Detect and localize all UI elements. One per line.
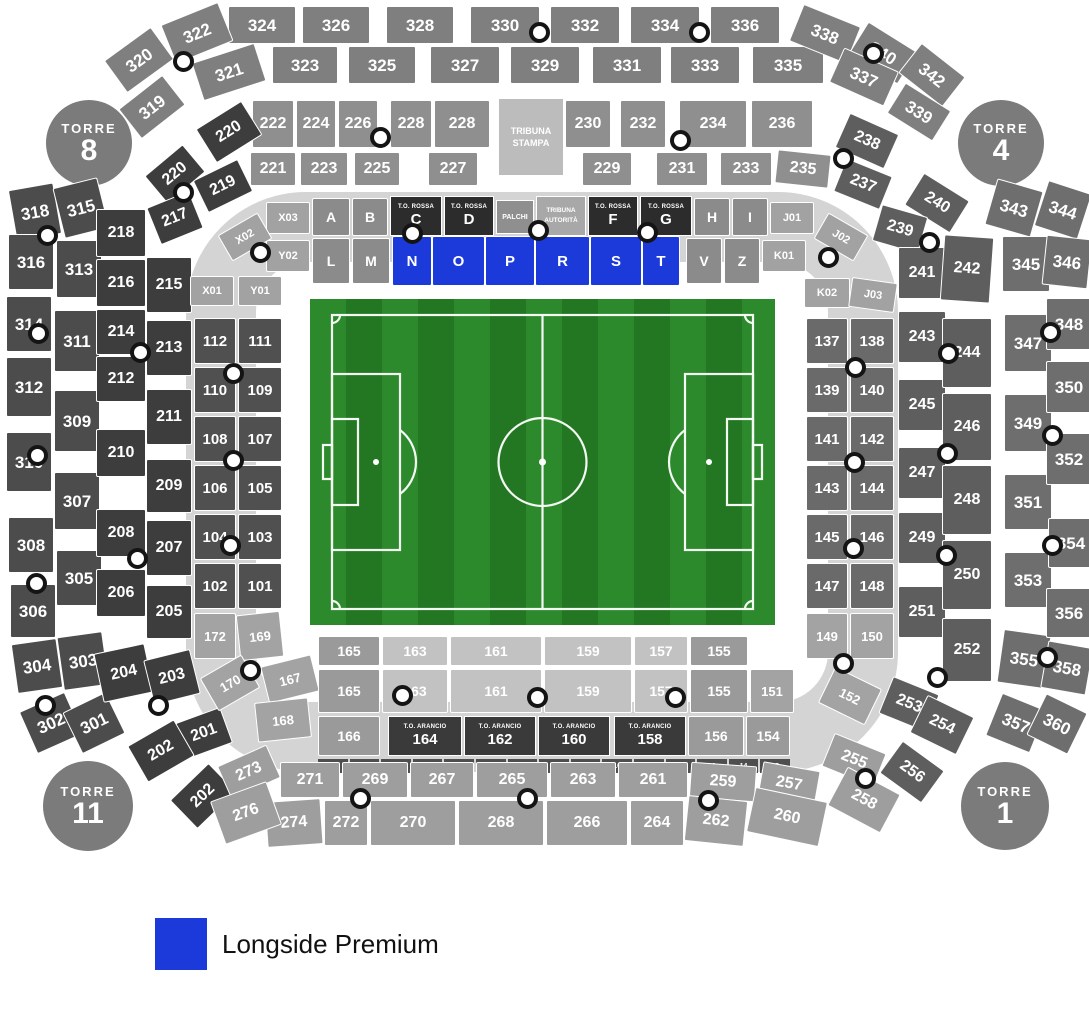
- section-D: T.O. ROSSAD: [444, 196, 494, 236]
- gate-marker-icon: [1040, 322, 1061, 343]
- gate-marker-icon: [528, 220, 549, 241]
- section-166: 166: [318, 716, 380, 756]
- gate-marker-icon: [637, 222, 658, 243]
- stadium-seating-map: TORRE 8 TORRE 4 TORRE 11 TORRE 1 TRIBUNA…: [0, 0, 1089, 1032]
- section-267: 267: [410, 762, 474, 798]
- gate-marker-icon: [689, 22, 710, 43]
- section-B: B: [352, 198, 388, 236]
- section-106: 106: [194, 465, 236, 511]
- section-137: 137: [806, 318, 848, 364]
- gate-marker-icon: [370, 127, 391, 148]
- section-328: 328: [386, 6, 454, 44]
- gate-marker-icon: [527, 687, 548, 708]
- section-263: 263: [550, 762, 616, 798]
- gate-marker-icon: [240, 660, 261, 681]
- gate-marker-icon: [37, 225, 58, 246]
- section-329: 329: [510, 46, 580, 84]
- section-Y02: Y02: [266, 240, 310, 272]
- section-336: 336: [710, 6, 780, 44]
- section-252: 252: [942, 618, 992, 682]
- section-M: M: [352, 238, 390, 284]
- section-206: 206: [96, 569, 146, 617]
- gate-marker-icon: [223, 363, 244, 384]
- section-105: 105: [238, 465, 282, 511]
- section-101: 101: [238, 563, 282, 609]
- section-143: 143: [806, 465, 848, 511]
- gate-marker-icon: [919, 232, 940, 253]
- section-245: 245: [898, 379, 946, 431]
- section-161: 161: [450, 636, 542, 666]
- section-207: 207: [146, 520, 192, 576]
- gate-marker-icon: [28, 323, 49, 344]
- section-102: 102: [194, 563, 236, 609]
- gate-marker-icon: [26, 573, 47, 594]
- gate-marker-icon: [936, 545, 957, 566]
- section-S[interactable]: S: [590, 236, 642, 286]
- section-109: 109: [238, 367, 282, 413]
- section-326: 326: [302, 6, 370, 44]
- section-221: 221: [250, 152, 296, 186]
- legend-label: Longside Premium: [222, 929, 439, 960]
- section-211: 211: [146, 389, 192, 445]
- section-333: 333: [670, 46, 740, 84]
- section-T[interactable]: T: [642, 236, 680, 286]
- section-X01: X01: [190, 276, 234, 306]
- section-I: I: [732, 198, 768, 236]
- gate-marker-icon: [937, 443, 958, 464]
- gate-marker-icon: [27, 445, 48, 466]
- gate-marker-icon: [698, 790, 719, 811]
- section-215: 215: [146, 257, 192, 313]
- section-157: 157: [634, 636, 688, 666]
- tower-1: TORRE 1: [961, 762, 1049, 850]
- section-141: 141: [806, 416, 848, 462]
- section-X03: X03: [266, 202, 310, 234]
- section-360: 360: [1026, 693, 1088, 755]
- section-323: 323: [272, 46, 338, 84]
- section-332: 332: [550, 6, 620, 44]
- section-335: 335: [752, 46, 824, 84]
- section-327: 327: [430, 46, 500, 84]
- gate-marker-icon: [927, 667, 948, 688]
- section-307: 307: [54, 472, 100, 530]
- gate-marker-icon: [1037, 647, 1058, 668]
- section-233: 233: [720, 152, 772, 186]
- section-229: 229: [582, 152, 632, 186]
- section-213: 213: [146, 320, 192, 376]
- section-311: 311: [54, 310, 100, 372]
- section-227: 227: [428, 152, 478, 186]
- section-154: 154: [746, 716, 790, 756]
- section-264: 264: [630, 800, 684, 846]
- gate-marker-icon: [220, 535, 241, 556]
- section-241: 241: [898, 247, 946, 299]
- section-F: T.O. ROSSAF: [588, 196, 638, 236]
- section-356: 356: [1046, 588, 1089, 638]
- pitch: [310, 299, 775, 625]
- section-265: 265: [476, 762, 548, 798]
- gate-marker-icon: [392, 685, 413, 706]
- section-P[interactable]: P: [485, 236, 535, 286]
- section-266: 266: [546, 800, 628, 846]
- section-248: 248: [942, 465, 992, 535]
- section-145: 145: [806, 514, 848, 560]
- section-216: 216: [96, 259, 146, 307]
- section-155: 155: [690, 636, 748, 666]
- section-103: 103: [238, 514, 282, 560]
- section-168: 168: [254, 697, 312, 742]
- section-165: 165: [318, 669, 380, 713]
- gate-marker-icon: [250, 242, 271, 263]
- section-228: 228: [390, 100, 432, 148]
- gate-marker-icon: [670, 130, 691, 151]
- section-346: 346: [1042, 235, 1089, 290]
- gate-marker-icon: [938, 343, 959, 364]
- section-159: 159: [544, 669, 632, 713]
- section-330: 330: [470, 6, 540, 44]
- section-232: 232: [620, 100, 666, 148]
- section-139: 139: [806, 367, 848, 413]
- gate-marker-icon: [863, 43, 884, 64]
- section-151: 151: [750, 669, 794, 713]
- gate-marker-icon: [833, 148, 854, 169]
- section-334: 334: [630, 6, 700, 44]
- section-tribuna-stampa: TRIBUNA STAMPA: [498, 98, 564, 176]
- gate-marker-icon: [402, 223, 423, 244]
- section-304: 304: [11, 638, 64, 694]
- section-155: 155: [690, 669, 748, 713]
- section-209: 209: [146, 459, 192, 513]
- gate-marker-icon: [1042, 425, 1063, 446]
- section-225: 225: [354, 152, 400, 186]
- section-A: A: [312, 198, 350, 236]
- gate-marker-icon: [1042, 535, 1063, 556]
- section-242: 242: [940, 234, 994, 303]
- section-O[interactable]: O: [432, 236, 485, 286]
- tower-4: TORRE 4: [958, 100, 1044, 186]
- section-308: 308: [8, 517, 54, 573]
- section-Z: Z: [724, 238, 760, 284]
- section-R[interactable]: R: [535, 236, 590, 286]
- section-344: 344: [1034, 180, 1089, 240]
- section-325: 325: [348, 46, 416, 84]
- section-150: 150: [850, 613, 894, 659]
- section-312: 312: [6, 357, 52, 417]
- section-228: 228: [434, 100, 490, 148]
- section-353: 353: [1004, 552, 1052, 608]
- section-147: 147: [806, 563, 848, 609]
- gate-marker-icon: [529, 22, 550, 43]
- section-J03: J03: [848, 277, 898, 313]
- section-172: 172: [194, 613, 236, 659]
- section-165: 165: [318, 636, 380, 666]
- section-343: 343: [984, 178, 1043, 237]
- section-324: 324: [228, 6, 296, 44]
- section-309: 309: [54, 390, 100, 452]
- gate-marker-icon: [223, 450, 244, 471]
- section-205: 205: [146, 585, 192, 639]
- section-112: 112: [194, 318, 236, 364]
- gate-marker-icon: [350, 788, 371, 809]
- section-251: 251: [898, 586, 946, 638]
- gate-marker-icon: [845, 357, 866, 378]
- section-223: 223: [300, 152, 348, 186]
- section-156: 156: [688, 716, 744, 756]
- section-163: 163: [382, 636, 448, 666]
- section-271: 271: [280, 762, 340, 798]
- section-222: 222: [252, 100, 294, 148]
- gate-marker-icon: [665, 687, 686, 708]
- section-162: T.O. ARANCIO162: [464, 716, 536, 756]
- section-J01: J01: [770, 202, 814, 234]
- section-111: 111: [238, 318, 282, 364]
- section-231: 231: [656, 152, 708, 186]
- section-107: 107: [238, 416, 282, 462]
- gate-marker-icon: [173, 51, 194, 72]
- section-301: 301: [62, 692, 125, 754]
- section-V: V: [686, 238, 722, 284]
- section-H: H: [694, 198, 730, 236]
- section-210: 210: [96, 429, 146, 477]
- section-164: T.O. ARANCIO164: [388, 716, 462, 756]
- section-350: 350: [1046, 361, 1089, 413]
- legend-swatch: [155, 918, 207, 970]
- gate-marker-icon: [173, 182, 194, 203]
- gate-marker-icon: [844, 452, 865, 473]
- section-158: T.O. ARANCIO158: [614, 716, 686, 756]
- gate-marker-icon: [148, 695, 169, 716]
- section-314: 314: [6, 296, 52, 352]
- section-230: 230: [565, 100, 611, 148]
- section-169: 169: [236, 611, 285, 661]
- gate-marker-icon: [130, 342, 151, 363]
- section-148: 148: [850, 563, 894, 609]
- section-236: 236: [751, 100, 813, 148]
- section-270: 270: [370, 800, 456, 846]
- section-K02: K02: [804, 278, 850, 308]
- section-159: 159: [544, 636, 632, 666]
- section-331: 331: [592, 46, 662, 84]
- gate-marker-icon: [833, 653, 854, 674]
- tower-8: TORRE 8: [46, 100, 132, 186]
- gate-marker-icon: [843, 538, 864, 559]
- section-K01: K01: [762, 240, 806, 272]
- section-351: 351: [1004, 474, 1052, 530]
- section-L: L: [312, 238, 350, 284]
- section-218: 218: [96, 209, 146, 257]
- section-261: 261: [618, 762, 688, 798]
- gate-marker-icon: [35, 695, 56, 716]
- gate-marker-icon: [818, 247, 839, 268]
- tower-11: TORRE 11: [43, 761, 133, 851]
- section-160: T.O. ARANCIO160: [538, 716, 610, 756]
- section-235: 235: [774, 149, 831, 188]
- gate-marker-icon: [127, 548, 148, 569]
- section-Y01: Y01: [238, 276, 282, 306]
- pitch-lines-icon: [310, 299, 775, 625]
- gate-marker-icon: [517, 788, 538, 809]
- gate-marker-icon: [855, 768, 876, 789]
- section-224: 224: [296, 100, 336, 148]
